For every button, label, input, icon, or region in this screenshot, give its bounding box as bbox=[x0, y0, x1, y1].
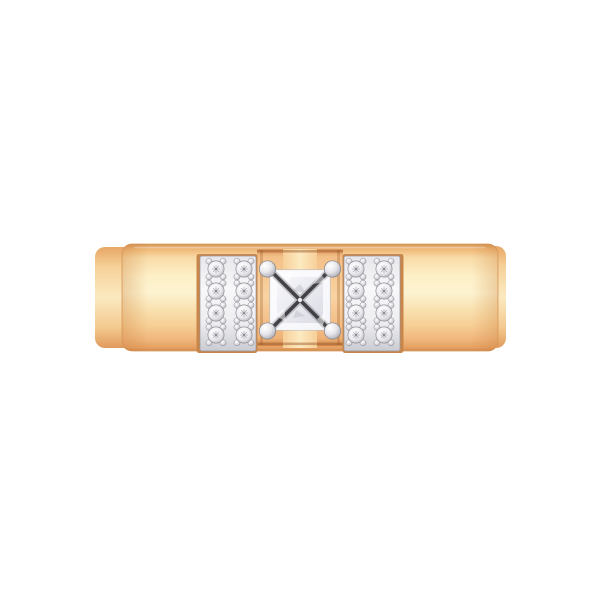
pave-stone-center bbox=[355, 268, 357, 270]
diamond-center-sparkle bbox=[298, 298, 302, 302]
ring bbox=[95, 244, 506, 353]
pave-stone-center bbox=[383, 268, 385, 270]
prong-ball-bottom-right bbox=[324, 323, 340, 339]
center-notch-shadow-top bbox=[257, 250, 343, 253]
ring-product-image bbox=[0, 0, 600, 600]
prong-ball-top-left bbox=[259, 261, 275, 277]
pave-stone-center bbox=[383, 290, 385, 292]
pave-panel-right bbox=[343, 254, 404, 353]
prong-ball-top-right bbox=[324, 261, 340, 277]
pave-stone-center bbox=[215, 268, 217, 270]
pave-stone-center bbox=[215, 312, 217, 314]
pave-stone-center bbox=[355, 290, 357, 292]
pave-stone-center bbox=[383, 334, 385, 336]
center-notch-shadow-bottom bbox=[257, 343, 343, 346]
pave-stone-center bbox=[243, 334, 245, 336]
pave-stone-center bbox=[243, 312, 245, 314]
pave-stone-center bbox=[215, 334, 217, 336]
pave-stone-center bbox=[355, 312, 357, 314]
pave-stone-center bbox=[383, 312, 385, 314]
pave-stone-center bbox=[355, 334, 357, 336]
pave-panel-left bbox=[197, 254, 258, 353]
pave-stone-center bbox=[215, 290, 217, 292]
pave-stone-center bbox=[243, 290, 245, 292]
center-diamond-group bbox=[259, 261, 340, 339]
prong-ball-bottom-left bbox=[259, 323, 275, 339]
pave-stone-center bbox=[243, 268, 245, 270]
